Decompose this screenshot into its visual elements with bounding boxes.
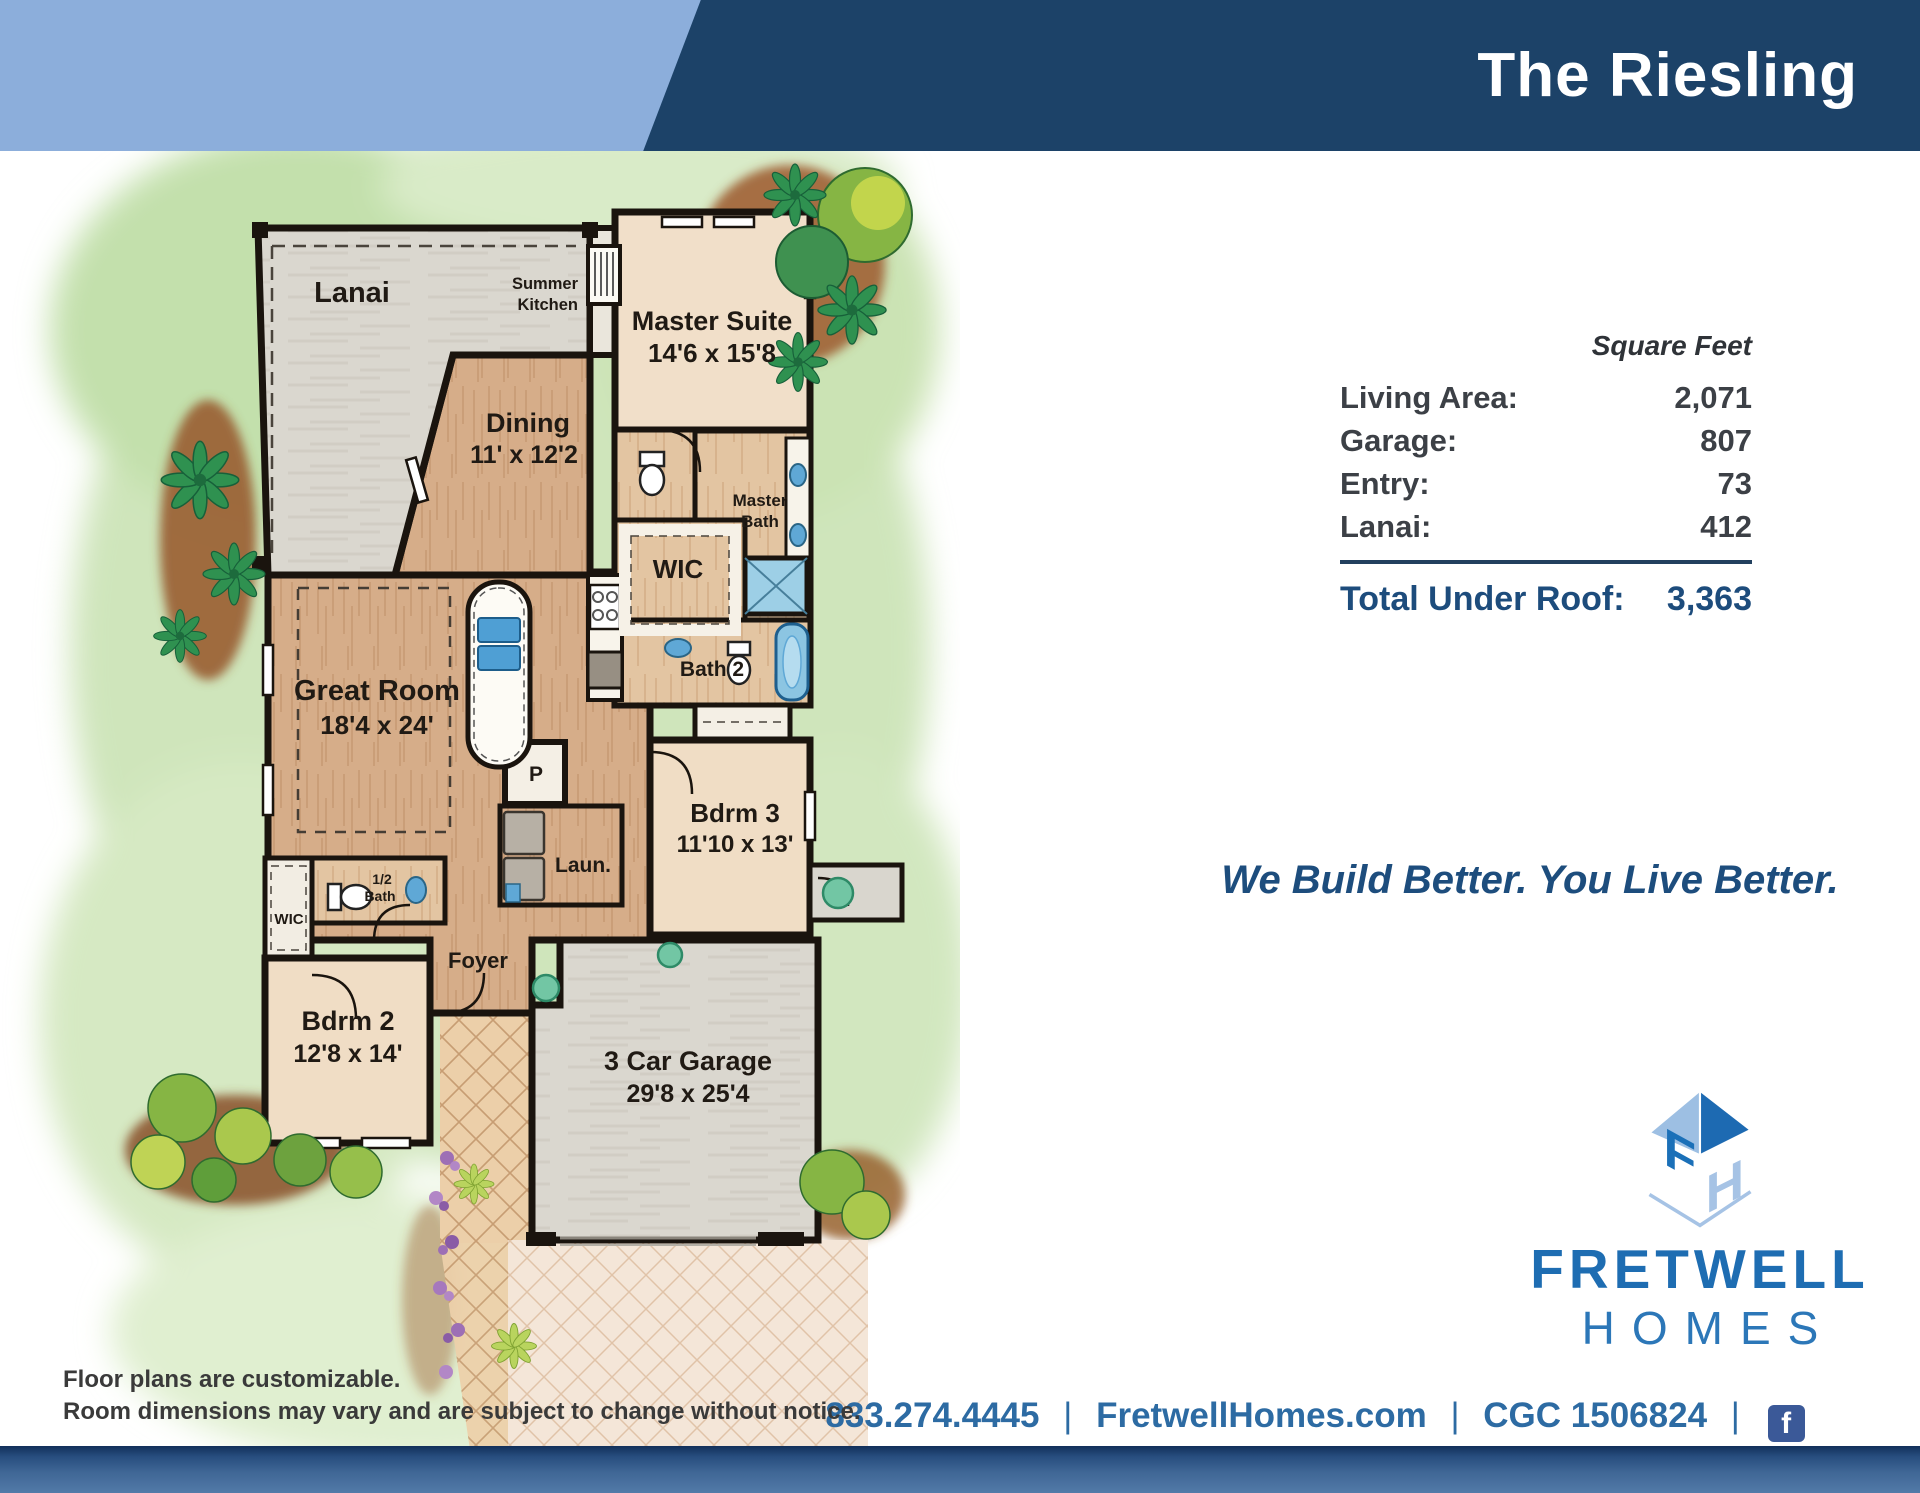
separator: |	[1731, 1396, 1740, 1435]
logo-wordmark-sub: HOMES	[1520, 1301, 1880, 1355]
floor-plan-illustration: Lanai Summer Kitchen Master Suite 14'6 x…	[0, 150, 960, 1450]
disclaimer-line1: Floor plans are customizable.	[63, 1364, 861, 1396]
disclaimer-text: Floor plans are customizable. Room dimen…	[63, 1364, 861, 1428]
square-feet-table: Square Feet Living Area: 2,071 Garage: 8…	[1340, 330, 1752, 619]
label-summer-kitchen-2: Kitchen	[517, 296, 578, 314]
fretwell-homes-cube-icon: F H	[1627, 1085, 1773, 1231]
label-master-bath-2: Bath	[741, 512, 779, 531]
label-great-room: Great Room	[294, 675, 460, 707]
label-bdrm3-dims: 11'10 x 13'	[677, 831, 794, 858]
header-banner: The Riesling	[0, 0, 1920, 151]
separator: |	[1450, 1396, 1459, 1435]
tagline: We Build Better. You Live Better.	[1150, 858, 1910, 903]
table-row: Entry: 73	[1340, 462, 1752, 505]
facebook-icon[interactable]: f	[1768, 1405, 1805, 1442]
label-bdrm2-dims: 12'8 x 14'	[293, 1040, 402, 1068]
label-half-bath-1: 1/2	[372, 871, 392, 887]
row-value: 73	[1718, 462, 1752, 505]
table-row: Garage: 807	[1340, 419, 1752, 462]
row-value: 2,071	[1674, 376, 1752, 419]
row-value: 412	[1700, 505, 1752, 548]
label-master-suite: Master Suite	[632, 306, 793, 336]
label-bdrm2: Bdrm 2	[301, 1006, 394, 1036]
label-summer-kitchen-1: Summer	[512, 275, 579, 293]
total-label: Total Under Roof:	[1340, 580, 1625, 619]
label-great-room-dims: 18'4 x 24'	[320, 710, 434, 740]
license-number: CGC 1506824	[1483, 1396, 1707, 1435]
label-foyer: Foyer	[448, 948, 508, 973]
bottom-accent-bar	[0, 1446, 1920, 1493]
label-dining: Dining	[486, 408, 570, 438]
row-label: Garage:	[1340, 419, 1457, 462]
label-laundry: Laun.	[555, 854, 611, 877]
row-label: Living Area:	[1340, 376, 1518, 419]
total-value: 3,363	[1667, 580, 1752, 619]
row-label: Entry:	[1340, 462, 1430, 505]
company-logo: F H FRETWELL HOMES	[1520, 1085, 1880, 1355]
label-master-suite-dims: 14'6 x 15'8	[648, 338, 776, 368]
separator: |	[1063, 1396, 1072, 1435]
square-feet-column-header: Square Feet	[1340, 330, 1752, 362]
kitchen-island	[468, 582, 530, 767]
grill-icon	[588, 246, 620, 304]
label-master-bath-1: Master	[733, 491, 788, 510]
row-label: Lanai:	[1340, 505, 1431, 548]
table-row: Living Area: 2,071	[1340, 376, 1752, 419]
laundry-fixtures	[504, 812, 544, 902]
label-garage: 3 Car Garage	[604, 1046, 772, 1076]
logo-wordmark: FRETWELL	[1520, 1237, 1880, 1301]
total-row: Total Under Roof: 3,363	[1340, 580, 1752, 619]
website-link[interactable]: FretwellHomes.com	[1096, 1396, 1427, 1435]
label-garage-dims: 29'8 x 25'4	[626, 1080, 749, 1108]
bdrm2-wic-room	[265, 858, 312, 958]
label-lanai: Lanai	[314, 277, 390, 309]
table-row: Lanai: 412	[1340, 505, 1752, 548]
contact-bar: 833.274.4445 | FretwellHomes.com | CGC 1…	[755, 1396, 1875, 1442]
label-pantry: P	[529, 763, 543, 786]
label-master-wic: WIC	[653, 554, 704, 584]
page-title: The Riesling	[1477, 0, 1858, 151]
disclaimer-line2: Room dimensions may vary and are subject…	[63, 1396, 861, 1428]
kitchen-counter	[588, 575, 622, 700]
table-divider	[1340, 560, 1752, 564]
label-bdrm3: Bdrm 3	[690, 798, 780, 828]
label-dining-dims: 11' x 12'2	[470, 441, 578, 469]
label-half-bath-2: Bath	[364, 888, 395, 904]
label-bdrm2-wic: WIC	[274, 911, 303, 928]
label-bath2: Bath 2	[680, 658, 744, 681]
row-value: 807	[1700, 419, 1752, 462]
